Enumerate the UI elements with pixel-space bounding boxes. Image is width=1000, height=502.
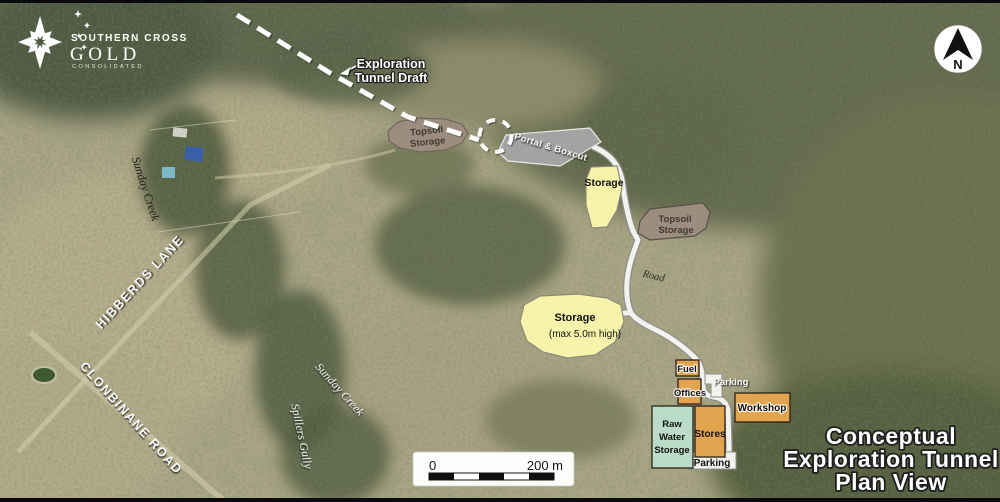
blue-roof-building <box>184 146 203 162</box>
fuel-label: Fuel <box>677 364 697 375</box>
tunnel-label-2: Tunnel Draft <box>355 71 429 85</box>
pool <box>162 167 175 178</box>
farm-dam <box>32 367 56 383</box>
storage-main-note: (max 5.0m high) <box>549 329 621 340</box>
workshop-label: Workshop <box>738 403 787 414</box>
north-arrow: N <box>934 25 982 73</box>
parking-lower-label: Parking <box>694 458 731 469</box>
shed-building <box>173 127 188 137</box>
topsoil-storage-2-label-1: Topsoil <box>658 214 691 225</box>
aerial-map: Sunday Creek HIBBERDS LANE CLONBINANE RO… <box>0 0 1000 502</box>
raw-water-label-1: Raw <box>662 419 682 430</box>
logo-name-line1: SOUTHERN CROSS <box>71 33 188 44</box>
plan-view-figure: Sunday Creek HIBBERDS LANE CLONBINANE RO… <box>0 0 1000 502</box>
scale-end-label: 200 m <box>527 458 563 473</box>
offices-label: Offices <box>674 388 706 399</box>
logo-name-line3: CONSOLIDATED <box>72 64 144 70</box>
stores-label: Stores <box>694 429 726 440</box>
raw-water-label-2: Water <box>659 432 685 443</box>
storage-main-label: Storage <box>555 312 596 324</box>
storage-upper-label: Storage <box>584 177 623 189</box>
north-label: N <box>953 57 962 72</box>
topsoil-storage-2-label-2: Storage <box>658 225 693 236</box>
scale-bar-segments <box>429 473 554 480</box>
top-edge <box>0 0 1000 3</box>
title-line3: Plan View <box>835 469 946 495</box>
parking-upper-label: Parking <box>714 377 749 388</box>
tunnel-label-1: Exploration <box>357 57 426 71</box>
raw-water-label-3: Storage <box>654 445 689 456</box>
scale-start-label: 0 <box>429 458 436 473</box>
scale-bar: 0 200 m <box>413 452 574 486</box>
logo-name-line2: GOLD <box>70 44 141 65</box>
bottom-edge <box>0 498 1000 502</box>
